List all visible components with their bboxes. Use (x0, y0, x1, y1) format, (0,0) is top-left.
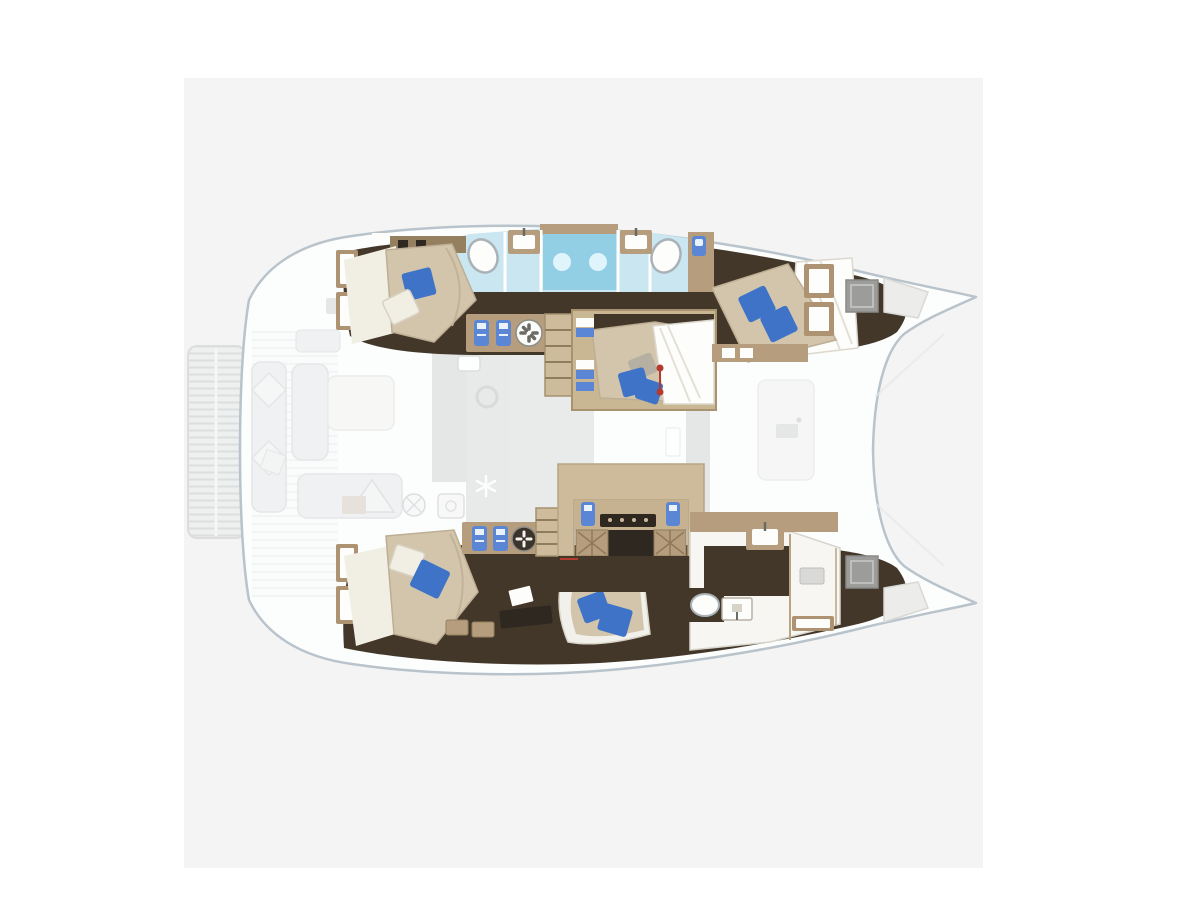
galley-stove (600, 514, 656, 527)
shower-drain (589, 253, 607, 271)
hanger-icon (474, 320, 489, 346)
fan-wheel-icon (516, 320, 542, 346)
hanger-icon (496, 320, 511, 346)
galley-floor (558, 556, 704, 592)
bottle-icon (581, 502, 595, 526)
counter-item-ghost (458, 356, 480, 371)
helm-dot (797, 418, 802, 423)
port-deck-hatch (846, 280, 878, 312)
counter-washbasin (746, 522, 784, 550)
hull-window (804, 264, 834, 298)
shower-seat (800, 568, 824, 584)
fan-wheel-icon (512, 527, 536, 551)
toilet (686, 588, 724, 622)
hull-window (804, 302, 834, 336)
port-wardrobe-block (466, 314, 548, 352)
wicker-locker-door (576, 530, 608, 556)
counter-washbasin (508, 228, 540, 254)
bottle-icon (666, 502, 680, 526)
saloon-sofa-ghost (292, 364, 328, 460)
starboard-deck-hatch (846, 556, 878, 588)
side-table (446, 620, 468, 635)
galley-footwell (608, 530, 654, 556)
counter-washbasin (620, 228, 652, 254)
bathroom-top-cabinet (540, 224, 618, 235)
stern-swim-platform (188, 346, 245, 538)
galley-unit (558, 464, 704, 592)
shelf-item (372, 233, 386, 243)
locker-ghost (342, 496, 366, 514)
helm-instrument-icon (776, 424, 798, 438)
toilet-icon (692, 236, 706, 256)
saloon-table-ghost (328, 376, 394, 430)
hanger-icon (472, 526, 487, 551)
catamaran-floorplan-image (0, 0, 1200, 900)
hanger-icon (493, 526, 508, 551)
washbasin (722, 598, 752, 620)
wicker-locker-door (654, 530, 686, 556)
mid-cabin (572, 310, 716, 410)
shower-drain (553, 253, 571, 271)
galley-stove-icon (438, 494, 464, 518)
cockpit-seat (296, 330, 340, 352)
locker-ghost (666, 428, 680, 456)
hull-window (792, 616, 834, 631)
floorplan-svg (0, 0, 1200, 900)
side-table (472, 622, 494, 637)
